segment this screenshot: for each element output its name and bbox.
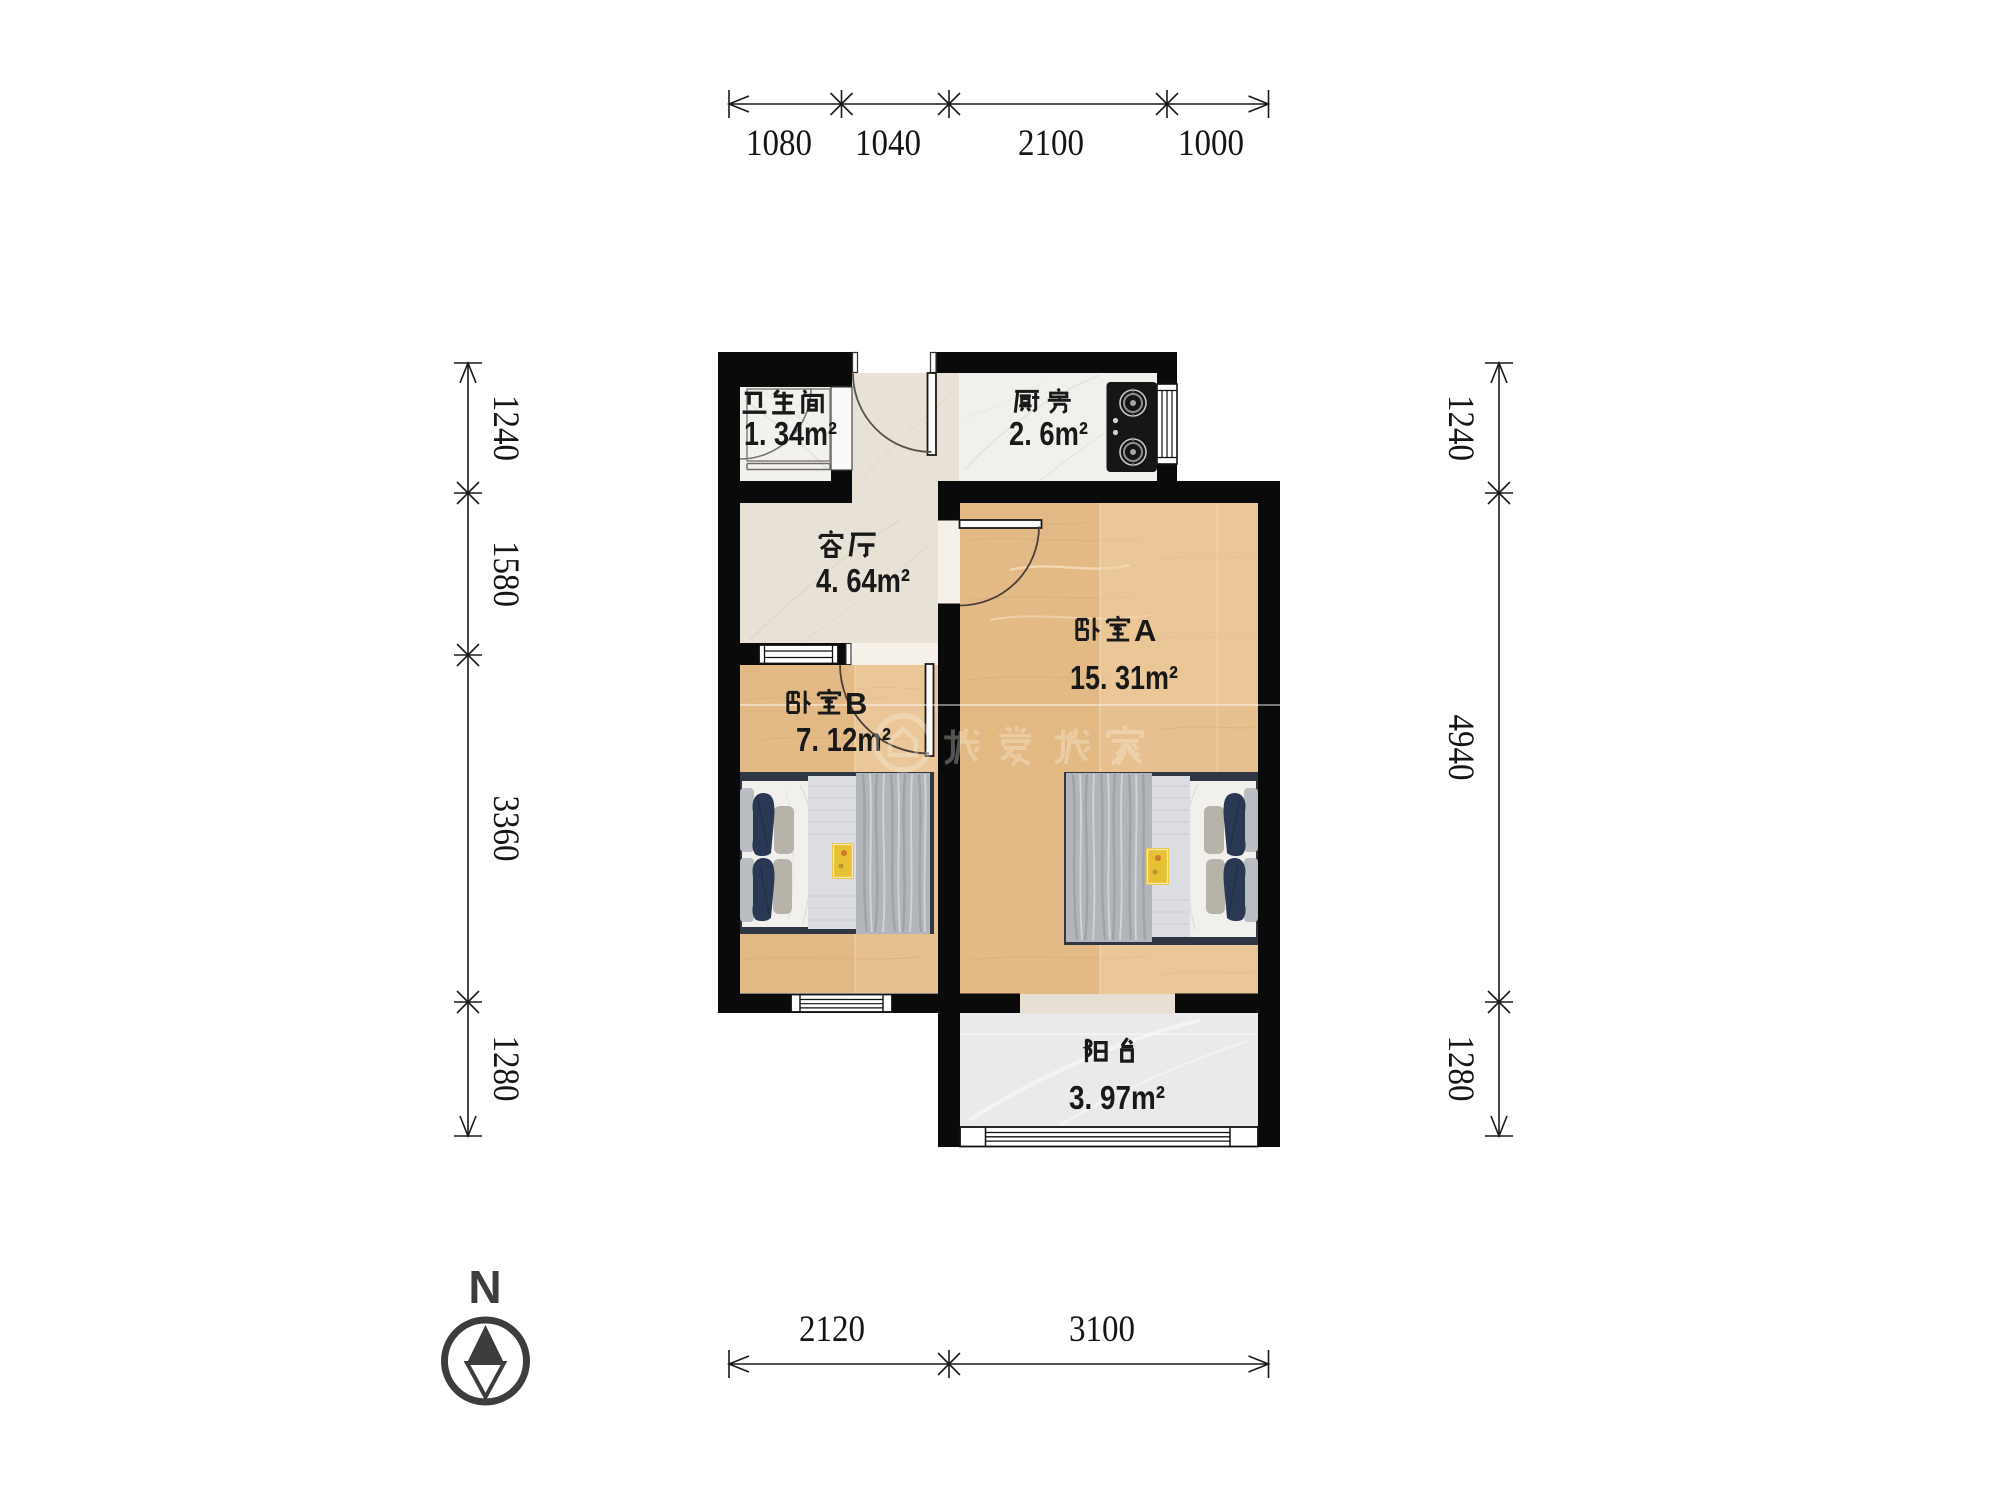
svg-text:3360: 3360 — [486, 796, 527, 862]
svg-text:3. 97m²: 3. 97m² — [1069, 1079, 1165, 1116]
svg-text:1280: 1280 — [486, 1036, 527, 1102]
svg-text:2120: 2120 — [799, 1308, 865, 1349]
svg-text:B: B — [845, 686, 867, 721]
svg-text:3100: 3100 — [1069, 1308, 1135, 1349]
svg-text:1. 34m²: 1. 34m² — [744, 415, 837, 452]
svg-text:1280: 1280 — [1441, 1036, 1482, 1102]
svg-text:2. 6m²: 2. 6m² — [1009, 415, 1088, 452]
svg-text:N: N — [468, 1261, 501, 1313]
svg-text:A: A — [1134, 613, 1156, 648]
svg-text:4. 64m²: 4. 64m² — [816, 562, 910, 599]
svg-text:4940: 4940 — [1441, 715, 1482, 781]
svg-text:1240: 1240 — [486, 395, 527, 461]
svg-text:1000: 1000 — [1178, 122, 1244, 163]
svg-text:1080: 1080 — [746, 122, 812, 163]
svg-text:1580: 1580 — [486, 541, 527, 607]
svg-text:2100: 2100 — [1018, 122, 1084, 163]
svg-text:15. 31m²: 15. 31m² — [1070, 659, 1178, 696]
svg-text:1240: 1240 — [1441, 395, 1482, 461]
svg-text:1040: 1040 — [855, 122, 921, 163]
